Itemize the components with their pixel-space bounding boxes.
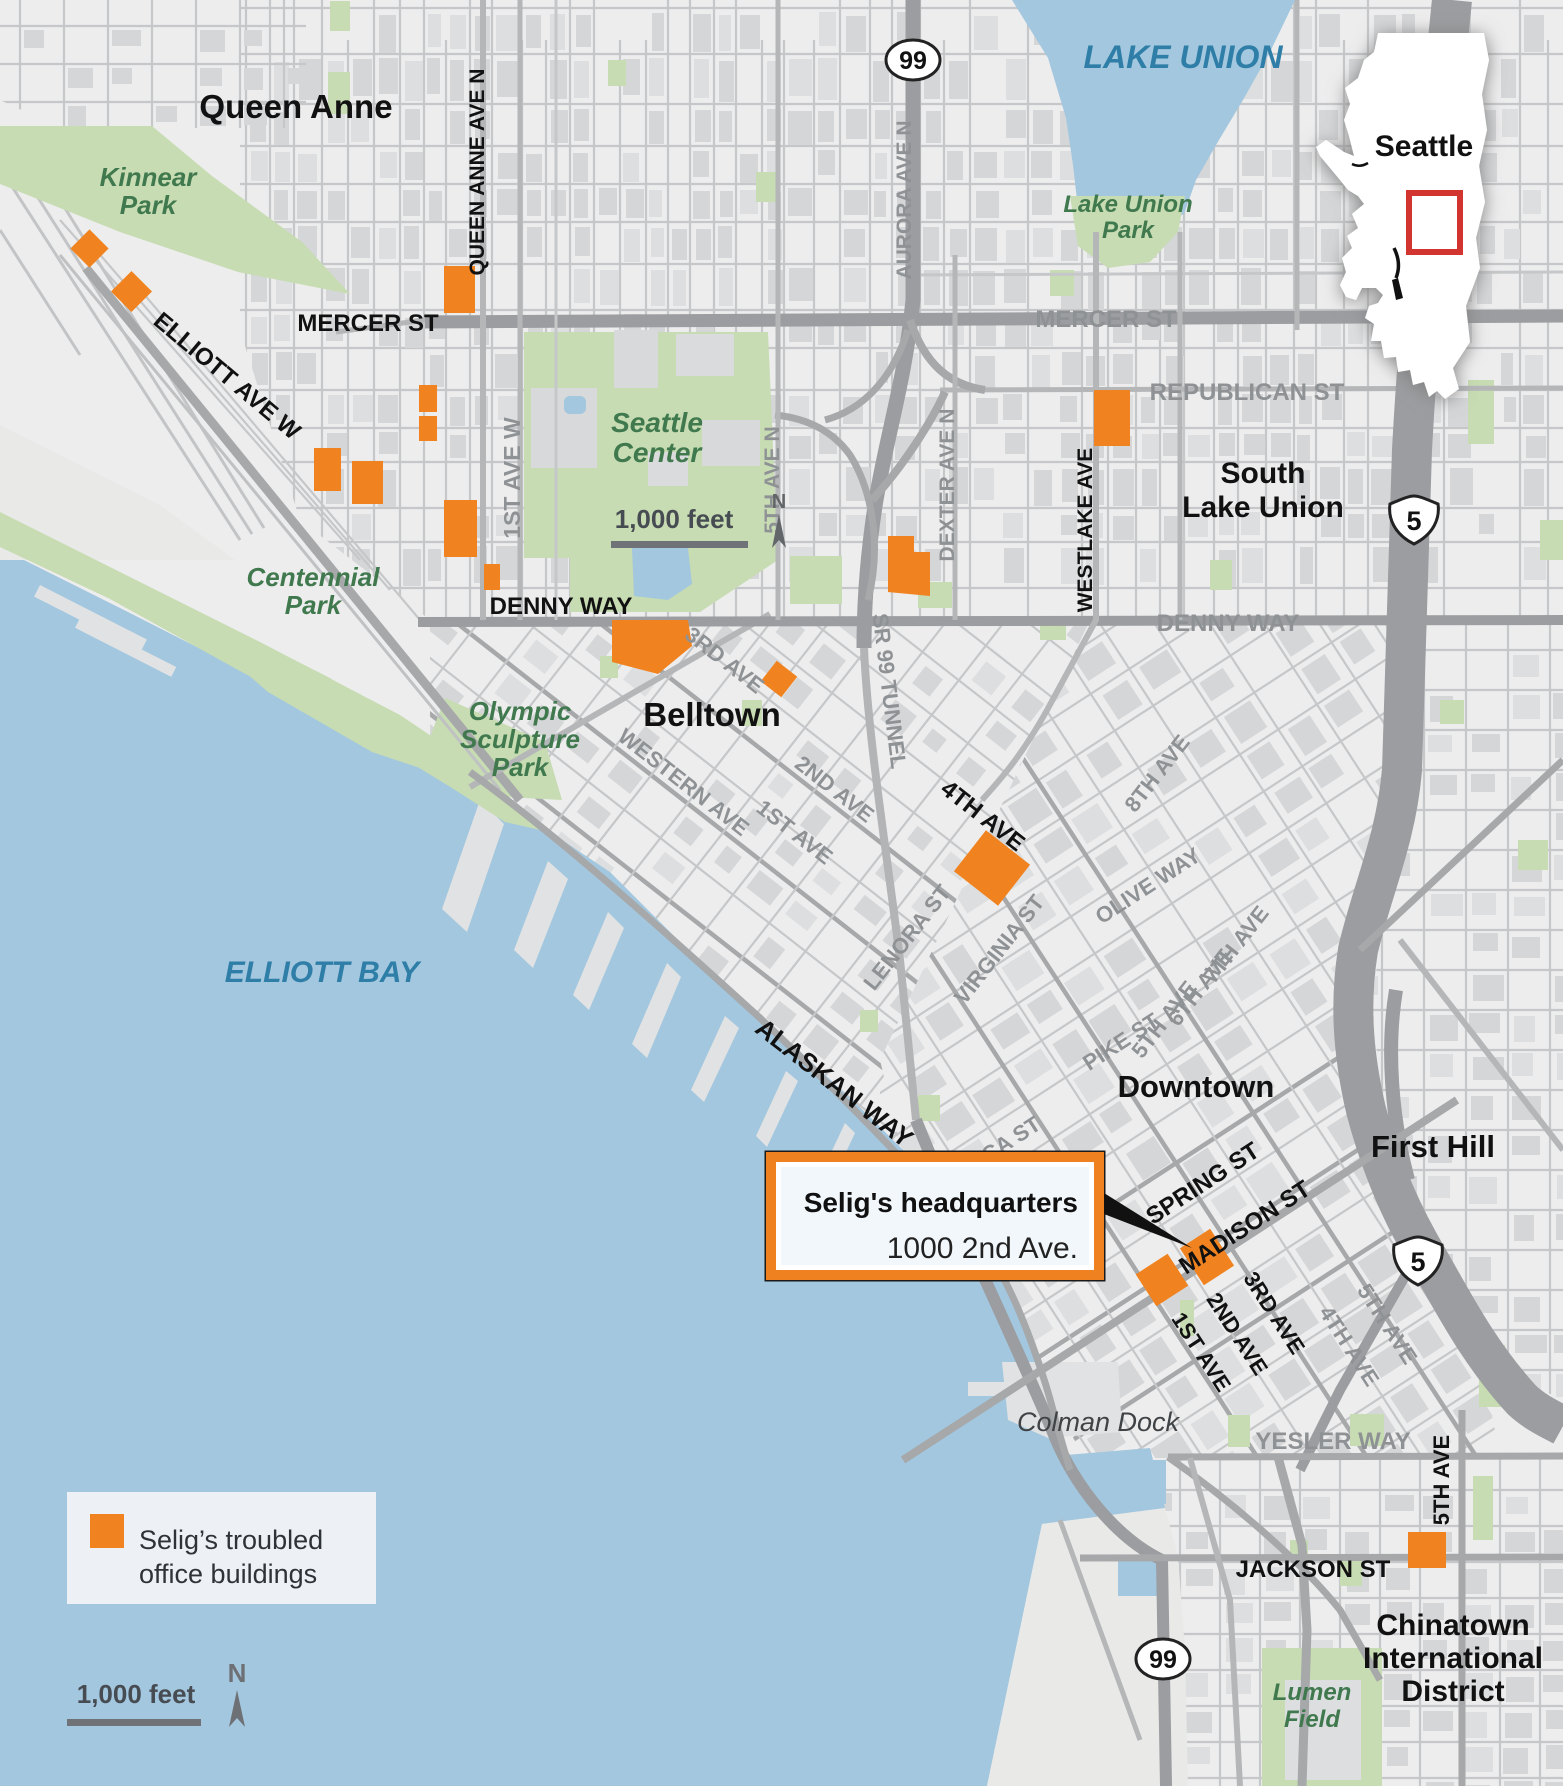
svg-text:N: N — [228, 1658, 247, 1688]
svg-text:5: 5 — [1406, 506, 1421, 536]
svg-text:International: International — [1363, 1642, 1543, 1675]
svg-text:Olympic: Olympic — [469, 696, 572, 726]
svg-text:Park: Park — [1102, 217, 1156, 244]
svg-text:Field: Field — [1284, 1706, 1341, 1733]
svg-text:Queen Anne: Queen Anne — [199, 88, 392, 125]
svg-text:Seattle: Seattle — [1375, 130, 1473, 163]
svg-text:Selig's headquarters: Selig's headquarters — [804, 1187, 1078, 1218]
svg-text:LAKE UNION: LAKE UNION — [1083, 39, 1283, 75]
svg-text:Lake Union: Lake Union — [1063, 191, 1192, 218]
svg-text:Selig’s troubled: Selig’s troubled — [139, 1525, 323, 1555]
svg-text:1ST AVE W: 1ST AVE W — [499, 417, 525, 539]
svg-text:99: 99 — [1149, 1646, 1177, 1674]
svg-text:99: 99 — [899, 47, 927, 75]
svg-text:5TH AVE N: 5TH AVE N — [761, 426, 784, 533]
svg-text:Lake Union: Lake Union — [1182, 491, 1344, 524]
svg-text:South: South — [1221, 457, 1306, 490]
svg-text:QUEEN ANNE AVE N: QUEEN ANNE AVE N — [466, 69, 489, 276]
svg-text:YESLER WAY: YESLER WAY — [1255, 1428, 1410, 1455]
svg-text:DENNY WAY: DENNY WAY — [490, 593, 633, 620]
svg-text:Chinatown: Chinatown — [1376, 1609, 1529, 1642]
svg-text:5TH AVE: 5TH AVE — [1429, 1435, 1454, 1525]
svg-text:Sculpture: Sculpture — [460, 724, 580, 754]
svg-text:ELLIOTT BAY: ELLIOTT BAY — [225, 956, 422, 989]
svg-text:AURORA AVE N: AURORA AVE N — [893, 120, 916, 279]
svg-text:Belltown: Belltown — [643, 696, 781, 733]
svg-text:MERCER ST: MERCER ST — [1035, 306, 1177, 333]
svg-text:MERCER ST: MERCER ST — [297, 310, 439, 337]
svg-text:1,000 feet: 1,000 feet — [615, 504, 734, 534]
svg-text:office buildings: office buildings — [139, 1559, 317, 1589]
svg-text:Downtown: Downtown — [1118, 1069, 1275, 1104]
svg-text:Lumen: Lumen — [1273, 1679, 1352, 1706]
svg-text:JACKSON ST: JACKSON ST — [1236, 1556, 1391, 1583]
svg-text:1,000 feet: 1,000 feet — [77, 1679, 196, 1709]
svg-text:District: District — [1401, 1675, 1504, 1708]
svg-text:First Hill: First Hill — [1371, 1129, 1495, 1164]
svg-text:Park: Park — [492, 752, 550, 782]
svg-text:5: 5 — [1410, 1247, 1425, 1277]
svg-text:WESTLAKE AVE: WESTLAKE AVE — [1074, 448, 1097, 613]
svg-text:1000 2nd Ave.: 1000 2nd Ave. — [887, 1232, 1078, 1265]
svg-text:Park: Park — [120, 190, 178, 220]
svg-text:REPUBLICAN ST: REPUBLICAN ST — [1150, 379, 1345, 406]
svg-text:Park: Park — [285, 590, 343, 620]
svg-text:N: N — [772, 491, 786, 513]
svg-text:DEXTER AVE N: DEXTER AVE N — [936, 409, 959, 562]
svg-text:Center: Center — [613, 437, 704, 468]
svg-text:Kinnear: Kinnear — [100, 162, 199, 192]
svg-text:Centennial: Centennial — [247, 562, 381, 592]
svg-text:Seattle: Seattle — [611, 407, 703, 438]
svg-text:DENNY WAY: DENNY WAY — [1157, 610, 1300, 637]
svg-text:Colman Dock: Colman Dock — [1017, 1407, 1181, 1437]
